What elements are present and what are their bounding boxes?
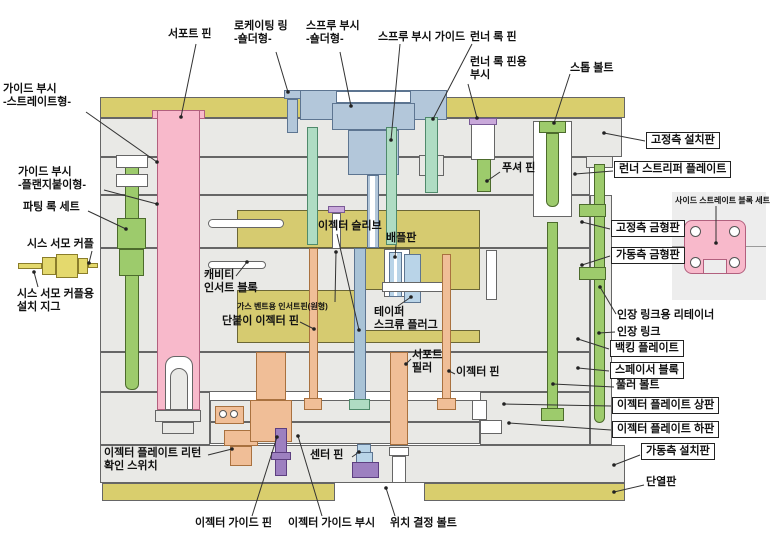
stop-disc-hole bbox=[219, 410, 227, 418]
stepped-ejector-pin-foot-shape bbox=[304, 398, 322, 410]
label-positioning-bolt: 위치 결정 볼트 bbox=[390, 517, 457, 530]
label-ejector-sleeve: 이젝터 슬리브 bbox=[318, 220, 382, 233]
block-notch-shape bbox=[703, 259, 727, 274]
label-guide-bush-straight: 가이드 부시 -스트레이트형- bbox=[3, 83, 71, 109]
block-hole-2 bbox=[729, 226, 740, 237]
stop-disc-hole2 bbox=[230, 410, 238, 418]
ejector-plate-bolt2-shape bbox=[480, 420, 502, 434]
bottom-insulation-right-shape bbox=[424, 483, 625, 501]
ejector-sleeve-shape bbox=[354, 248, 366, 400]
label-movable-clamp-plate: 가동측 설치판 bbox=[641, 443, 715, 460]
tension-link-shape bbox=[594, 164, 605, 423]
ejector-sleeve-collar-shape bbox=[349, 399, 370, 410]
label-baffle-plate: 배플판 bbox=[386, 232, 416, 245]
parting-lock-upper-shape bbox=[117, 218, 146, 249]
return-switch-body-shape bbox=[230, 446, 252, 466]
cooling-channel-shape bbox=[208, 219, 284, 228]
ejector-plate-bolt-shape bbox=[472, 400, 487, 420]
gas-vent-pin-cap-shape bbox=[328, 206, 345, 213]
sprue-guide-pin-left-shape bbox=[307, 127, 318, 245]
label-insulation-plate: 단열판 bbox=[646, 476, 676, 489]
positioning-bolt-shape bbox=[392, 456, 406, 483]
block-hole-1 bbox=[690, 226, 701, 237]
thermocouple-body-shape bbox=[56, 254, 78, 278]
cooling-channel2-shape bbox=[208, 261, 266, 269]
label-support-pin: 서포트 핀 bbox=[168, 28, 212, 41]
label-taper-screw-plug: 테이퍼 스크류 플러그 bbox=[374, 306, 438, 332]
label-parting-lock-set: 파팅 록 세트 bbox=[23, 201, 80, 214]
label-runner-stripper-plate: 런너 스트리퍼 플레이트 bbox=[614, 161, 731, 178]
thermocouple-tip-shape bbox=[88, 263, 98, 268]
runner-lock-pin-shape bbox=[425, 117, 438, 193]
ejector-guide-bush-upper-shape bbox=[256, 352, 286, 400]
label-ejector-guide-bush: 이젝터 가이드 부시 bbox=[288, 517, 375, 530]
locating-ring-recess-shape bbox=[336, 91, 411, 103]
return-pin-shape bbox=[486, 250, 497, 300]
label-stepped-ejector-pin: 단붙이 이젝터 핀 bbox=[222, 315, 299, 328]
pusher-pin-shape bbox=[477, 159, 491, 192]
taper-plug-wings-shape bbox=[382, 282, 443, 292]
puller-bolt-shape bbox=[547, 222, 558, 410]
label-side-straight-block-set: 사이드 스트레이트 블록 세트 bbox=[675, 196, 770, 205]
runner-lock-pin-bush-cap-shape bbox=[469, 118, 497, 125]
ejector-pin-foot-shape bbox=[437, 398, 456, 410]
shoulder-bolt-head-shape bbox=[284, 90, 301, 99]
label-center-pin: 센터 핀 bbox=[310, 449, 343, 462]
sprue-guide-pin-right-shape bbox=[386, 127, 397, 245]
sprue-bush-flange-shape bbox=[332, 103, 415, 130]
label-ejector-plate-lower: 이젝터 플레이트 하판 bbox=[612, 421, 719, 438]
stop-bolt-head-shape bbox=[539, 121, 566, 133]
label-ejector-pin: 이젝터 핀 bbox=[456, 366, 500, 379]
taper-screw-plug-shape bbox=[404, 254, 421, 303]
support-pin-foot-shape bbox=[155, 410, 201, 422]
positioning-bolt-head-shape bbox=[389, 447, 409, 456]
label-tension-link: 인장 링크 bbox=[617, 326, 661, 339]
label-sprue-bush: 스프루 부시 -숄더형- bbox=[306, 20, 360, 46]
thermocouple-cone-shape bbox=[78, 258, 88, 274]
label-guide-bush-flange: 가이드 부시 -플랜지붙이형- bbox=[18, 166, 86, 192]
sprue-bore-shape bbox=[370, 176, 375, 247]
puller-bolt-head-shape bbox=[541, 408, 564, 421]
thermocouple-rod-shape bbox=[18, 263, 42, 269]
label-ejector-return-switch: 이젝터 플레이트 리턴 확인 스위치 bbox=[104, 447, 201, 473]
label-ejector-guide-pin: 이젝터 가이드 핀 bbox=[195, 517, 272, 530]
mold-diagram: 서포트 핀로케이팅 링 -숄더형-스프루 부시 -숄더형-스프루 부시 가이드런… bbox=[0, 0, 770, 555]
label-puller-bolt: 풀러 볼트 bbox=[616, 379, 660, 392]
label-backing-plate: 백킹 플레이트 bbox=[610, 340, 684, 357]
label-sprue-bush-guide: 스프루 부시 가이드 bbox=[378, 31, 465, 44]
bottom-insulation-left-shape bbox=[102, 483, 335, 501]
thermocouple-hex-shape bbox=[42, 257, 56, 275]
label-spacer-block: 스페이서 블록 bbox=[610, 362, 684, 379]
label-movable-mold-plate: 가동측 금형판 bbox=[611, 247, 685, 264]
label-support-pillar: 서포트 필러 bbox=[412, 349, 442, 375]
label-tension-link-retainer: 인장 링크용 리테이너 bbox=[617, 309, 714, 322]
center-pin-base-shape bbox=[352, 462, 379, 478]
parting-lock-lower-shape bbox=[119, 249, 144, 276]
arch-pillar-shape bbox=[170, 368, 188, 410]
stop-bolt-shape bbox=[546, 133, 559, 207]
label-locating-ring: 로케이팅 링 -숄더형- bbox=[234, 20, 288, 46]
spacer-block-right-shape bbox=[480, 392, 590, 445]
label-stop-bolt: 스톱 볼트 bbox=[570, 62, 614, 75]
support-pin-foot2-shape bbox=[162, 422, 194, 434]
link-bolt-lower-shape bbox=[579, 267, 606, 280]
label-sheath-thermocouple: 시스 서모 커플 bbox=[27, 238, 94, 251]
stepped-ejector-pin-shape bbox=[309, 248, 318, 400]
ejector-guide-pin-collar-shape bbox=[271, 452, 291, 460]
label-gas-vent-insert-pin: 가스 벤트용 인서트핀(원형) bbox=[237, 302, 328, 311]
link-bolt-upper-shape bbox=[579, 204, 606, 217]
flanged-guide-bush-shape bbox=[116, 155, 148, 168]
label-runner-lock-pin: 런너 록 핀 bbox=[470, 31, 517, 44]
label-thermocouple-jig: 시스 서모 커플용 설치 지그 bbox=[17, 288, 94, 314]
label-fixed-clamp-plate: 고정측 설치판 bbox=[646, 132, 720, 149]
label-runner-lock-pin-bush: 런너 록 핀용 부시 bbox=[470, 56, 527, 82]
ejector-pin-shape bbox=[442, 254, 451, 400]
runner-lock-pin-bush-shape bbox=[471, 124, 495, 160]
label-cavity-insert-block: 캐비티 인서트 블록 bbox=[204, 269, 258, 295]
label-pusher-pin: 푸셔 핀 bbox=[502, 162, 535, 175]
block-hole-3 bbox=[690, 257, 701, 268]
flanged-guide-bush2-shape bbox=[116, 174, 148, 187]
label-fixed-mold-plate: 고정측 금형판 bbox=[611, 220, 685, 237]
label-ejector-plate-upper: 이젝터 플레이트 상판 bbox=[612, 397, 719, 414]
support-pillar-shape bbox=[390, 352, 408, 445]
block-hole-4 bbox=[729, 257, 740, 268]
shoulder-bolt-shape bbox=[287, 99, 298, 133]
